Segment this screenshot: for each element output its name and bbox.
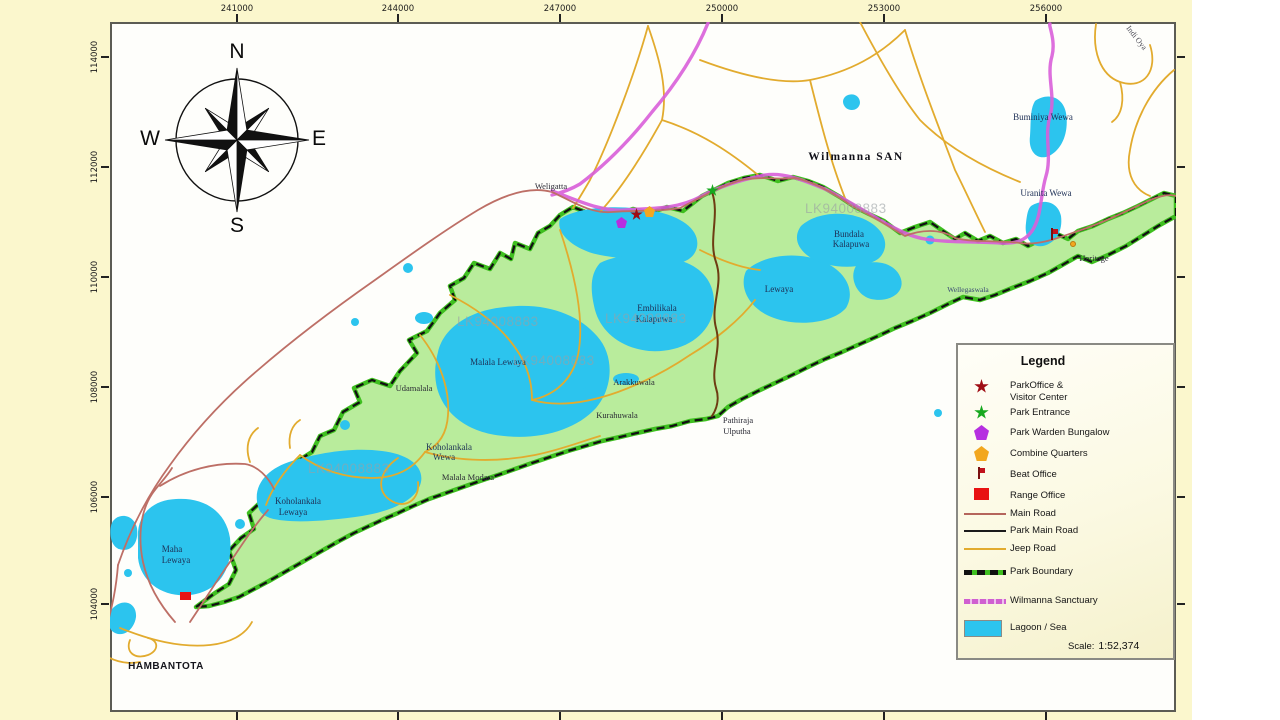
- axis-bottom-tick: [397, 712, 399, 720]
- axis-bottom-tick: [883, 712, 885, 720]
- compass-south-label: S: [226, 214, 248, 238]
- pond-small-10: [613, 373, 639, 385]
- axis-left-label: 114000: [90, 35, 100, 79]
- axis-top-label: 250000: [692, 4, 752, 14]
- legend-item-label: Main Road: [1010, 508, 1056, 520]
- watermark: LK94008883: [605, 311, 687, 326]
- pond-small-8: [934, 409, 942, 417]
- axis-bottom-tick: [236, 712, 238, 720]
- legend-item-label: Beat Office: [1010, 469, 1057, 481]
- axis-top-label: 244000: [368, 4, 428, 14]
- axis-left-label: 104000: [90, 582, 100, 626]
- watermark: LK94008883: [457, 314, 539, 329]
- compass-west-label: W: [139, 127, 161, 151]
- legend-item-label: Park Warden Bungalow: [1010, 427, 1109, 439]
- watermark: LK94008883: [513, 353, 595, 368]
- axis-right-tick: [1177, 496, 1185, 498]
- pond-small-3: [351, 318, 359, 326]
- axis-left-tick: [101, 603, 109, 605]
- legend-symbol-swatch-lagoon: [964, 620, 1002, 637]
- pond-small-1: [843, 94, 860, 110]
- scale-value: 1:52,374: [1098, 640, 1139, 652]
- park-office-marker: [630, 208, 643, 221]
- legend-symbol-star-red: [974, 379, 989, 394]
- axis-bottom-tick: [559, 712, 561, 720]
- axis-top-label: 241000: [207, 4, 267, 14]
- axis-bottom-tick: [721, 712, 723, 720]
- axis-top-tick: [236, 14, 238, 22]
- legend-item-label: Combine Quarters: [1010, 448, 1088, 460]
- axis-top-tick: [721, 14, 723, 22]
- axis-top-tick: [397, 14, 399, 22]
- beat-office-marker: [1047, 228, 1058, 240]
- pond-small-9: [582, 386, 604, 396]
- axis-left-label: 108000: [90, 365, 100, 409]
- axis-top-label: 256000: [1016, 4, 1076, 14]
- compass-rose: [160, 58, 314, 222]
- axis-right-tick: [1177, 56, 1185, 58]
- range-office-marker: [180, 592, 191, 600]
- axis-left-label: 112000: [90, 145, 100, 189]
- axis-top-label: 253000: [854, 4, 914, 14]
- legend-item-label: ParkOffice & Visitor Center: [1010, 380, 1067, 405]
- legend-symbol-line-main: [964, 513, 1006, 515]
- compass-north-label: N: [226, 40, 248, 64]
- combine-quarters-marker: [644, 206, 655, 217]
- legend-symbol-line-park: [964, 530, 1006, 532]
- pond-small-2: [403, 263, 413, 273]
- axis-right-tick: [1177, 386, 1185, 388]
- axis-top-label: 247000: [530, 4, 590, 14]
- watermark: LK94008883: [805, 201, 887, 216]
- sea-blob-1: [110, 516, 137, 550]
- legend-item-label: Park Entrance: [1010, 407, 1070, 419]
- pond-small-6: [235, 519, 245, 529]
- axis-left-label: 106000: [90, 475, 100, 519]
- legend-item-label: Lagoon / Sea: [1010, 622, 1067, 634]
- legend-symbol-star-green: [974, 405, 989, 420]
- legend-item-label: Park Main Road: [1010, 525, 1078, 537]
- poi-dot-marker: [1070, 241, 1076, 247]
- compass-east-label: E: [308, 127, 330, 151]
- legend-panel: Legend ParkOffice & Visitor CenterPark E…: [956, 343, 1175, 660]
- legend-symbol-pentagon-orange: [974, 446, 989, 461]
- scale-label: Scale:: [1068, 641, 1094, 652]
- park-warden-bungalow-marker: [616, 217, 627, 228]
- legend-title: Legend: [958, 354, 1128, 368]
- axis-top-tick: [1045, 14, 1047, 22]
- legend-item-label: Park Boundary: [1010, 566, 1073, 578]
- axis-right-tick: [1177, 276, 1185, 278]
- legend-item-label: Jeep Road: [1010, 543, 1056, 555]
- axis-left-tick: [101, 386, 109, 388]
- legend-symbol-line-jeep: [964, 548, 1006, 550]
- legend-symbol-square-red: [974, 488, 989, 500]
- pond-small-7: [124, 569, 132, 577]
- map-screenshot-root: N W E S Legend ParkOffice & Visitor Cent…: [0, 0, 1280, 720]
- axis-top-tick: [883, 14, 885, 22]
- axis-left-tick: [101, 56, 109, 58]
- pond-small-5: [340, 420, 350, 430]
- legend-symbol-pentagon-purple: [974, 425, 989, 440]
- legend-item-label: Range Office: [1010, 490, 1065, 502]
- pond-small-11: [415, 312, 433, 324]
- axis-right-tick: [1177, 603, 1185, 605]
- axis-top-tick: [559, 14, 561, 22]
- legend-symbol-line-boundary: [964, 570, 1006, 575]
- axis-left-tick: [101, 496, 109, 498]
- axis-left-label: 110000: [90, 255, 100, 299]
- legend-scale: Scale:1:52,374: [1068, 640, 1139, 652]
- axis-left-tick: [101, 166, 109, 168]
- legend-symbol-flag-red: [974, 467, 985, 479]
- axis-left-tick: [101, 276, 109, 278]
- watermark: LK94008883: [308, 461, 390, 476]
- legend-symbol-line-sanctuary: [964, 599, 1006, 604]
- axis-bottom-tick: [1045, 712, 1047, 720]
- axis-right-tick: [1177, 166, 1185, 168]
- legend-item-label: Wilmanna Sanctuary: [1010, 595, 1098, 607]
- park-entrance-marker: [706, 184, 719, 197]
